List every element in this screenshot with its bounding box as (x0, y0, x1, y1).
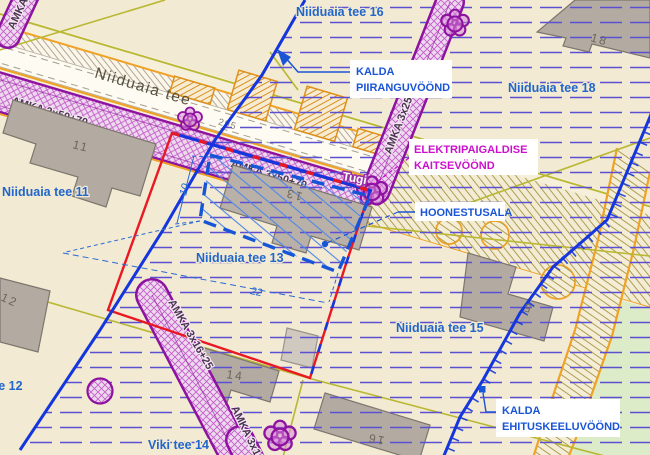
cable-ring (88, 379, 113, 404)
detail-plan-map: Niiduaia tee 295 AMKA 3x50+70 AMKA 3x50+… (0, 0, 650, 455)
parcel-label-viki-14: Viki tee 14 (148, 438, 209, 452)
annotation-kalda-piiranguvoond: KALDA PIIRANGUVÖÖND (350, 60, 452, 98)
annotation-elektripaigaldise-kaitsevoond: ELEKTRIPAIGALDISE KAITSEVÖÖND (409, 139, 538, 175)
annotation-text: KALDA (356, 66, 395, 78)
annotation-text: KALDA (502, 405, 541, 417)
parcel-label-niiduaia-15: Niiduaia tee 15 (396, 321, 484, 335)
annotation-text: PIIRANGUVÖÖND (356, 81, 450, 94)
parcel-label-niiduaia-12: Niiduaia tee 12 (0, 379, 23, 393)
parcel-label-niiduaia-18: Niiduaia tee 18 (508, 81, 596, 95)
dimension-22: 22 (248, 285, 263, 299)
annotation-text: ELEKTRIPAIGALDISE (414, 144, 527, 156)
building-number-14: 14 (226, 367, 245, 383)
parcel-label-niiduaia-16: Niiduaia tee 16 (296, 5, 384, 19)
hoonestusala-point (322, 241, 328, 247)
parcel-label-niiduaia-11: Niiduaia tee 11 (2, 185, 89, 199)
annotation-kalda-ehituskeeluvoond: KALDA EHITUSKEELUVÖÖND (496, 399, 620, 437)
parcel-label-niiduaia-13: Niiduaia tee 13 (196, 251, 284, 265)
annotation-text: HOONESTUSALA (420, 207, 512, 219)
annotation-text: KAITSEVÖÖND (414, 159, 495, 172)
annotation-hoonestusala: HOONESTUSALA (415, 202, 512, 221)
annotation-text: EHITUSKEELUVÖÖND (502, 420, 620, 433)
map-canvas: Niiduaia tee 295 AMKA 3x50+70 AMKA 3x50+… (0, 0, 650, 455)
